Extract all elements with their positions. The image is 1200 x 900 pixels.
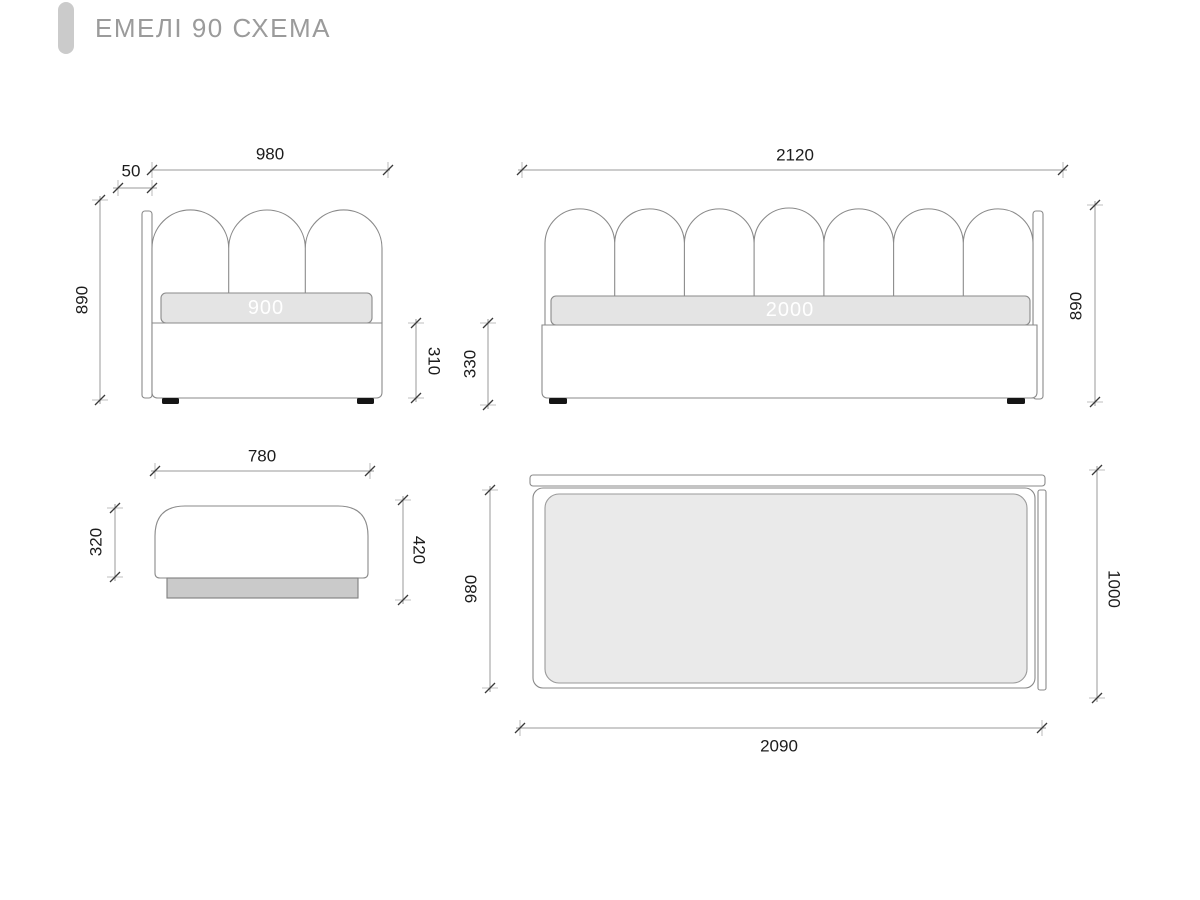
dim-label-top-inner-width: 980 (463, 575, 480, 603)
dim-label-top-total-width: 1000 (1106, 570, 1123, 608)
dim-label-front-height: 890 (74, 286, 91, 314)
dim-label-side-length: 2120 (776, 147, 814, 164)
top-view-mattress (545, 494, 1027, 683)
top-view-headboard-strip (530, 475, 1045, 486)
front-view-foot-left (162, 398, 179, 404)
side-mattress-size-label: 2000 (766, 300, 815, 320)
dim-label-front-base-height: 310 (426, 347, 443, 375)
front-view-foot-right (357, 398, 374, 404)
ottoman-view (155, 506, 368, 598)
dim-label-side-height: 890 (1068, 292, 1085, 320)
top-view (530, 475, 1046, 690)
dim-label-top-length: 2090 (760, 738, 798, 755)
dim-label-front-panel-thickness: 50 (122, 163, 141, 180)
front-mattress-size-label: 900 (248, 298, 284, 318)
front-view-base (152, 323, 382, 398)
schema-page: ЕМЕЛІ 90 СХЕМА (0, 0, 1200, 900)
dim-label-ottoman-width: 780 (248, 448, 276, 465)
ottoman-body (155, 506, 368, 578)
front-view-side-panel (142, 211, 152, 398)
dim-label-ottoman-body-height: 320 (88, 528, 105, 556)
dim-label-side-base-height: 330 (462, 350, 479, 378)
dim-label-front-width: 980 (256, 146, 284, 163)
bed-schema-drawing (0, 0, 1200, 900)
side-view-foot-right (1007, 398, 1025, 404)
top-view-side-rail (1038, 490, 1046, 690)
dim-label-ottoman-total-height: 420 (411, 536, 428, 564)
ottoman-base-strip (167, 578, 358, 598)
side-view-foot-left (549, 398, 567, 404)
side-view-base (542, 325, 1037, 398)
